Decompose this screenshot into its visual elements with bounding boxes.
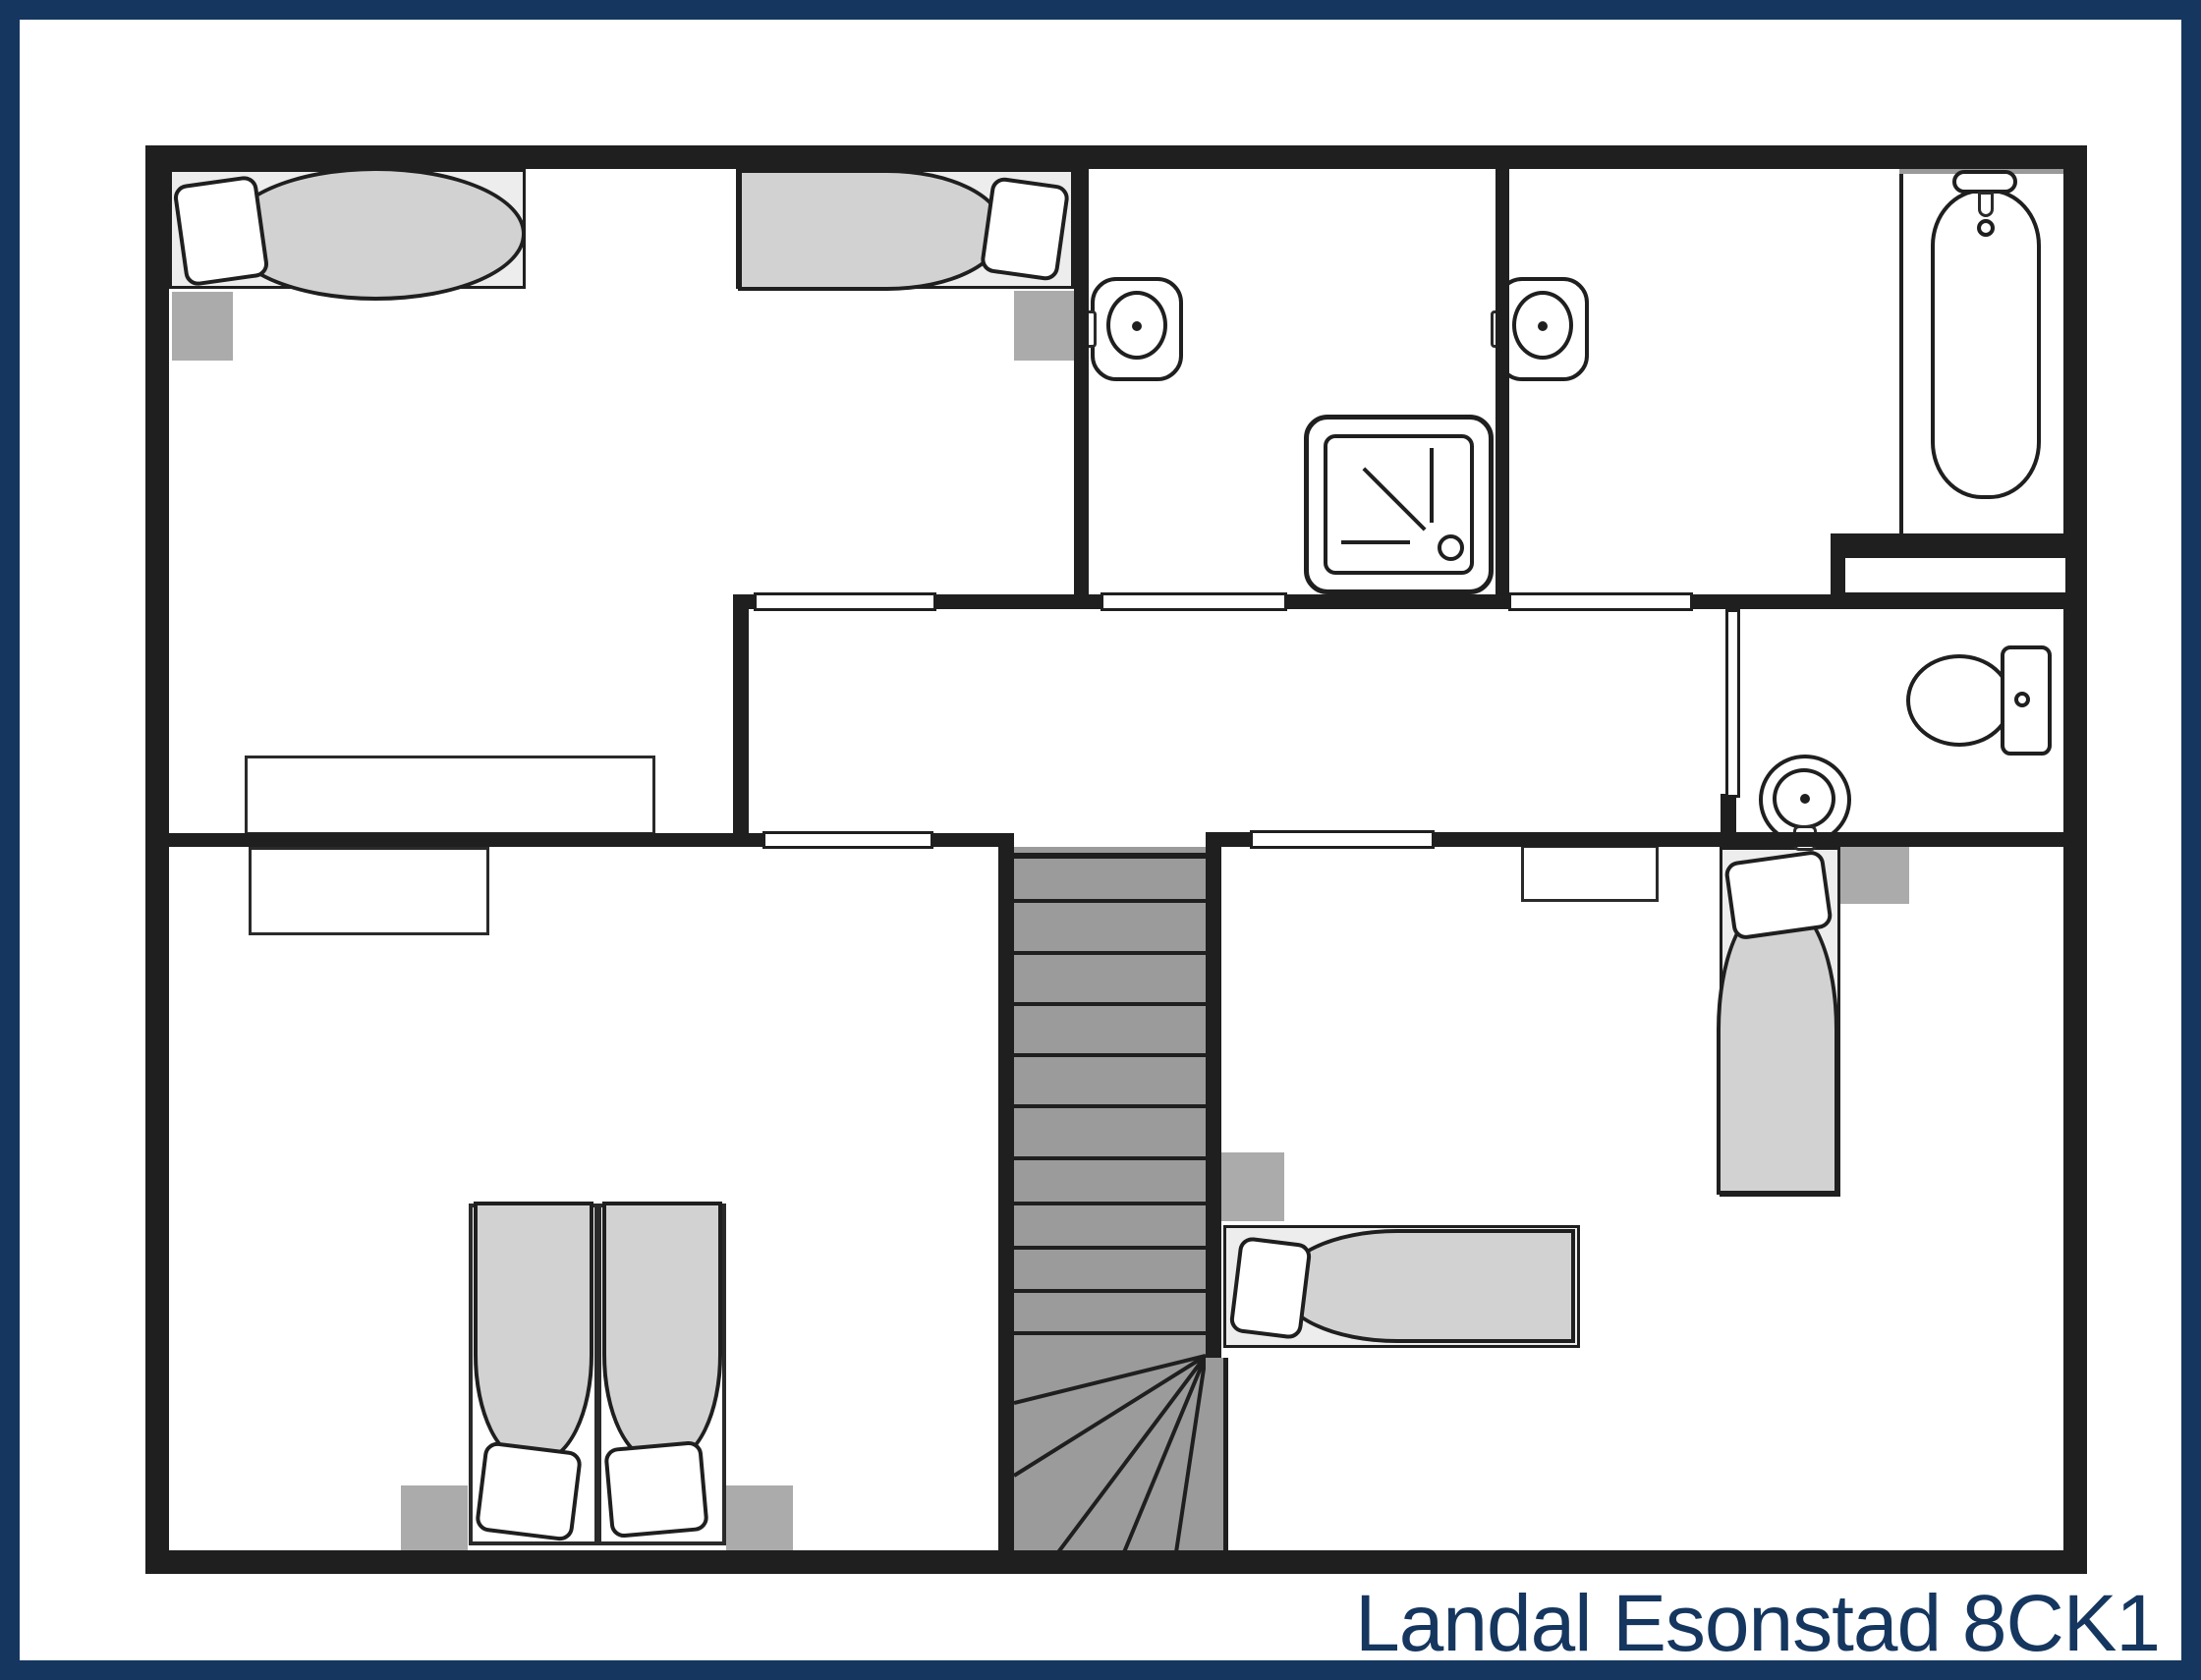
nightstand: [1014, 291, 1074, 361]
wall-lower-right: [1432, 832, 2065, 847]
toilet-bowl: [1906, 654, 2012, 747]
wall-bedroom-shower: [1074, 169, 1089, 594]
shower-tray-icon: [1304, 415, 1494, 594]
wardrobe: [249, 847, 489, 935]
nightstand: [1840, 847, 1909, 904]
wall-shelf: [1521, 845, 1659, 902]
wall-outer-bottom: [145, 1550, 2087, 1574]
shower-glyph-horizontal: [1341, 540, 1410, 544]
bath-niche-wall: [1899, 169, 1903, 533]
nightstand: [172, 292, 233, 361]
nightstand: [1221, 1152, 1284, 1221]
door-opening-shower-room: [1100, 592, 1287, 611]
pillow: [475, 1440, 583, 1542]
bathtub-spout: [1978, 192, 1994, 217]
wall-outer-top: [145, 145, 2087, 169]
wall-shower-bathroom: [1496, 169, 1509, 594]
stair-edge-line: [1223, 1358, 1228, 1552]
toilet-icon: [1091, 277, 1183, 381]
pillow: [172, 175, 270, 288]
wardrobe: [245, 756, 655, 835]
plan-caption: Landal Esonstad 8CK1: [1355, 1578, 2160, 1670]
door-opening-bathroom: [1508, 592, 1693, 611]
room-bedroom-bottom-right: [1221, 847, 2063, 1550]
nightstand: [726, 1485, 793, 1550]
nightstand: [401, 1485, 468, 1550]
duvet: [1717, 902, 1838, 1195]
pillow: [603, 1440, 709, 1539]
door-opening-bedroom-top-left: [754, 592, 936, 611]
toilet-drain: [2014, 692, 2030, 707]
door-leaf-wc: [1725, 609, 1740, 798]
wall-outer-left: [145, 145, 169, 1574]
bathtub-overflow: [1977, 219, 1995, 237]
duvet: [602, 1202, 722, 1463]
toilet-icon: [1906, 645, 2052, 756]
duvet: [474, 1202, 593, 1463]
bathtub-tap: [1952, 170, 2017, 194]
wall-corridor-top: [1284, 594, 1511, 609]
duvet: [226, 167, 526, 301]
wall-stairs-left: [998, 833, 1014, 1552]
wall-corridor-top: [1690, 594, 1847, 609]
wall-outer-right: [2063, 145, 2087, 1574]
bathtub-icon: [1931, 170, 2041, 499]
shower-drain: [1438, 534, 1464, 561]
toilet-drain: [1538, 321, 1548, 331]
wall-wc-left-stub: [1721, 794, 1736, 847]
door-opening-bedroom-bottom-right: [1250, 830, 1435, 849]
wall-stairs-right: [1206, 832, 1221, 1358]
duvet: [738, 169, 1005, 291]
duvet: [1279, 1229, 1575, 1343]
bath-niche-recess: [1845, 558, 2065, 592]
stair-winder-treads: [1014, 847, 1206, 1552]
wall-corridor-left: [733, 594, 749, 847]
toilet-drain: [1132, 321, 1142, 331]
wall-corridor-top: [933, 594, 1103, 609]
wall-lower-left: [145, 833, 762, 847]
toilet-icon: [1496, 277, 1589, 381]
floor-plan: Landal Esonstad 8CK1: [0, 0, 2201, 1680]
shower-glyph-vertical: [1430, 448, 1434, 523]
pillow: [1228, 1236, 1312, 1340]
basin-drain: [1800, 794, 1810, 804]
door-opening-bedroom-bottom-left: [762, 831, 933, 849]
pillow: [1723, 849, 1834, 940]
staircase: [1014, 847, 1206, 1552]
pillow: [980, 176, 1071, 282]
room-landing: [749, 609, 1721, 832]
